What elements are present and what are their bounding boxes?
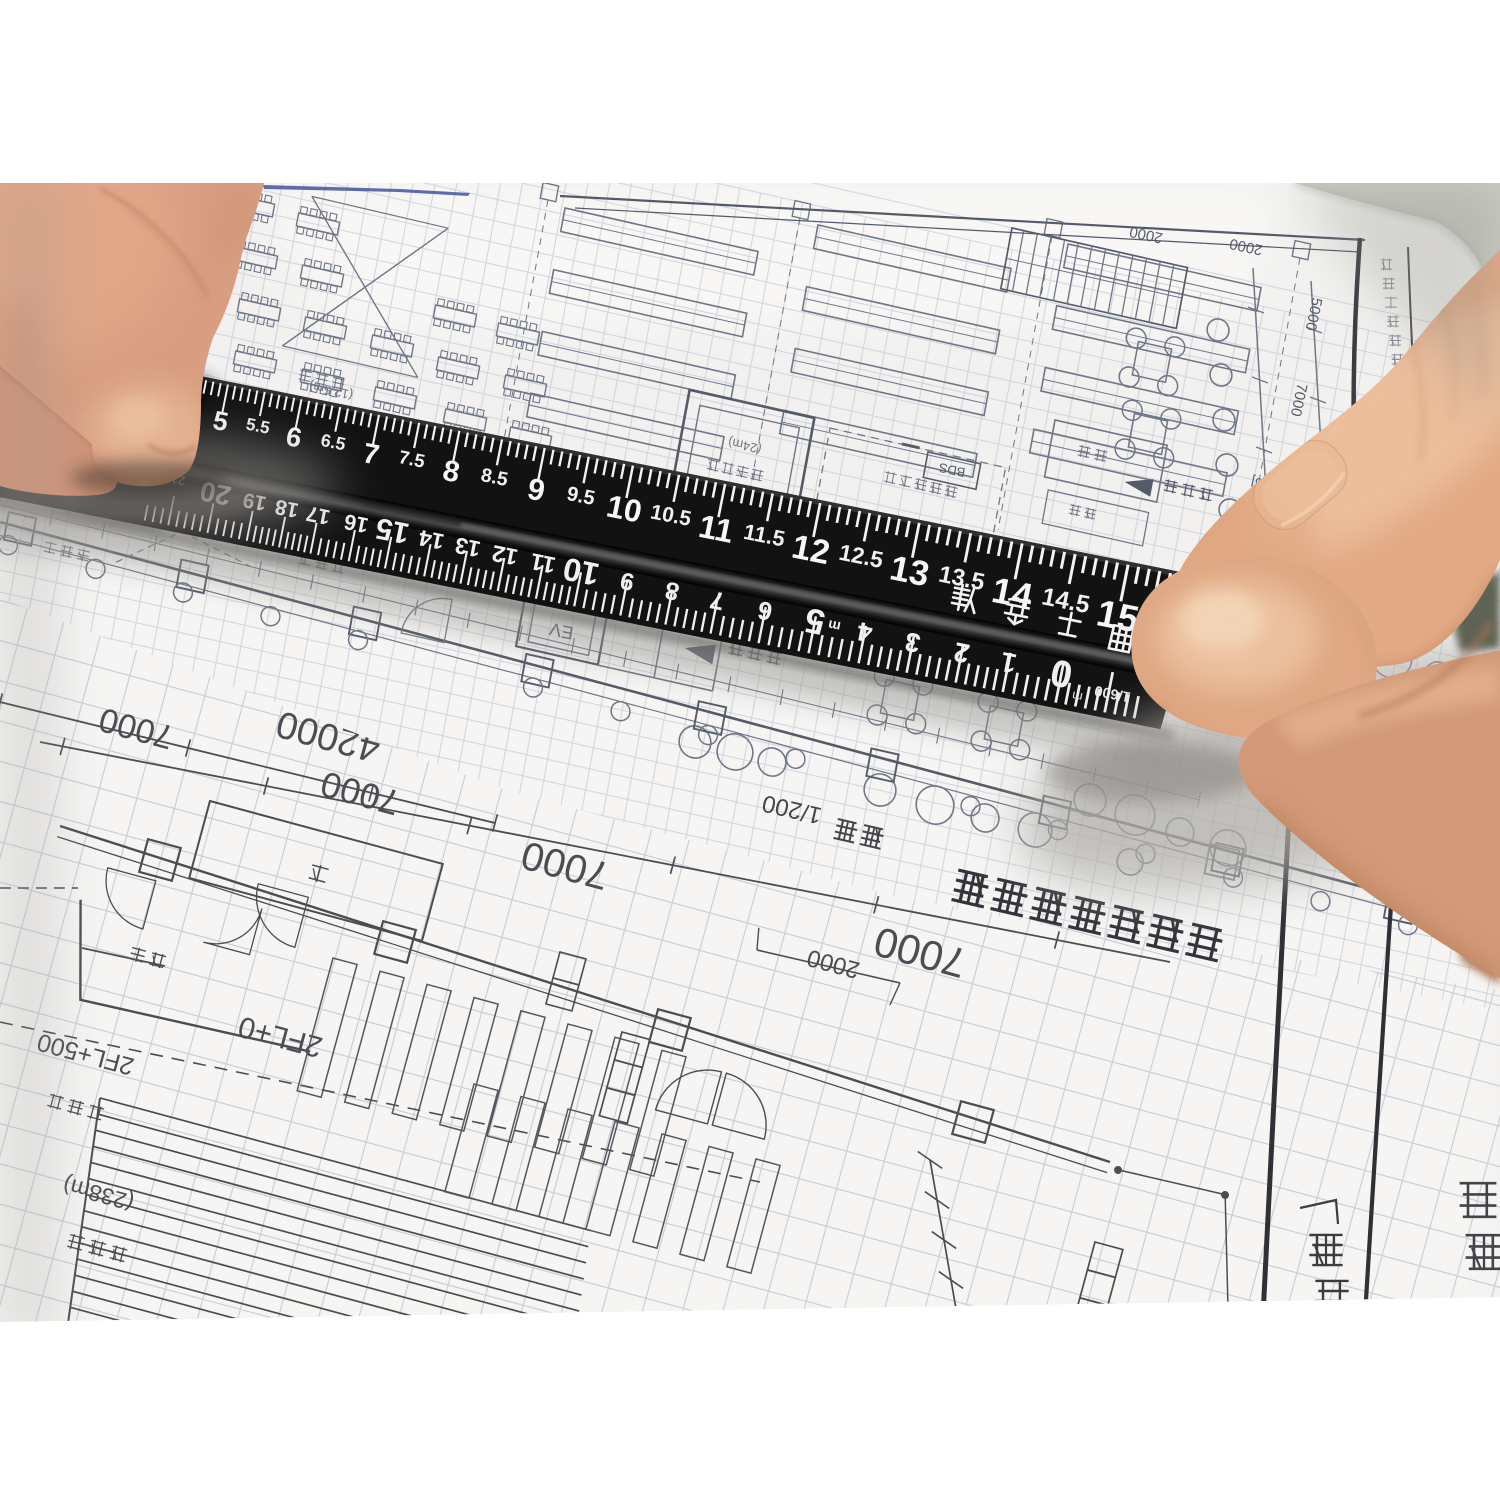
svg-text:13: 13 [453, 532, 483, 562]
svg-text:11: 11 [696, 507, 737, 550]
svg-text:16: 16 [342, 509, 371, 538]
svg-text:11: 11 [528, 548, 557, 578]
svg-text:15: 15 [373, 511, 412, 550]
svg-text:10: 10 [560, 550, 602, 592]
svg-text:10: 10 [604, 487, 645, 529]
svg-text:13: 13 [887, 548, 933, 594]
svg-text:12: 12 [789, 528, 833, 573]
svg-text:12: 12 [490, 540, 520, 571]
